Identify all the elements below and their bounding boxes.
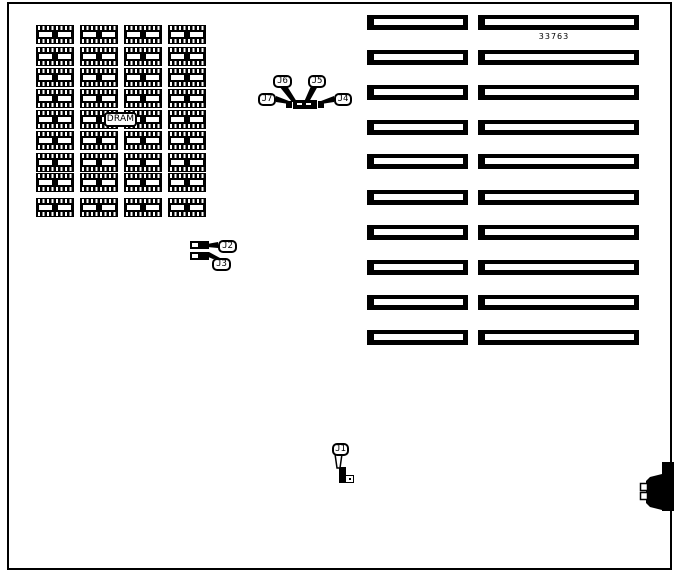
dram-chip	[36, 25, 74, 44]
expansion-slot	[367, 330, 468, 345]
jumper-j2	[190, 241, 209, 249]
dram-chip	[36, 131, 74, 150]
dram-chip	[36, 68, 74, 87]
callout-j6: J6	[273, 75, 292, 88]
expansion-slot	[478, 120, 639, 135]
callout-j4: J4	[334, 93, 352, 106]
dram-chip	[80, 198, 118, 217]
expansion-slot	[367, 154, 468, 169]
expansion-slot	[367, 190, 468, 205]
dram-chip	[168, 110, 206, 129]
dram-chip	[124, 198, 162, 217]
expansion-slot	[367, 225, 468, 240]
expansion-slot	[478, 50, 639, 65]
expansion-slot	[478, 225, 639, 240]
dram-chip	[168, 68, 206, 87]
callout-j2: J2	[218, 240, 237, 253]
expansion-slot	[478, 85, 639, 100]
dram-chip	[124, 173, 162, 192]
callout-j1: J1	[332, 443, 349, 456]
part-number-label: 33763	[528, 32, 580, 41]
expansion-slot	[478, 154, 639, 169]
dram-chip	[124, 89, 162, 108]
jumper-base	[339, 475, 354, 483]
expansion-slot	[478, 295, 639, 310]
dram-chip	[168, 89, 206, 108]
dram-chip	[36, 47, 74, 66]
dram-chip	[36, 173, 74, 192]
dram-chip	[80, 68, 118, 87]
callout-j3: J3	[212, 258, 231, 271]
dram-chip	[124, 153, 162, 172]
dram-chip	[80, 153, 118, 172]
dram-chip	[36, 198, 74, 217]
dram-chip	[168, 153, 206, 172]
dram-chip	[168, 173, 206, 192]
dram-label: DRAM	[104, 112, 137, 127]
expansion-slot	[367, 295, 468, 310]
jumper-pin-left	[286, 101, 292, 108]
dram-chip	[36, 153, 74, 172]
dram-chip	[36, 89, 74, 108]
expansion-slot	[367, 50, 468, 65]
dram-chip	[124, 131, 162, 150]
circuit-board-diagram: DRAM 33763 J6 J5 J7 J4 J2 J3 J1	[0, 0, 674, 577]
expansion-slot	[478, 190, 639, 205]
dram-chip	[168, 131, 206, 150]
jumper-pin-right	[318, 101, 324, 108]
jumper-block-j4-j7	[286, 100, 324, 109]
expansion-slot	[367, 15, 468, 30]
dram-chip	[80, 47, 118, 66]
dram-chip	[124, 25, 162, 44]
jumper-body	[293, 100, 317, 109]
expansion-slot	[367, 85, 468, 100]
dram-chip	[168, 47, 206, 66]
dram-chip	[124, 47, 162, 66]
expansion-slot	[478, 330, 639, 345]
expansion-slot	[367, 120, 468, 135]
expansion-slot	[367, 260, 468, 275]
dram-chip	[124, 68, 162, 87]
dram-chip	[80, 173, 118, 192]
jumper-j3	[190, 252, 209, 260]
expansion-slot	[478, 15, 639, 30]
dram-chip	[80, 25, 118, 44]
jumper-j1	[339, 467, 355, 484]
callout-j5: J5	[308, 75, 326, 88]
dram-chip	[168, 25, 206, 44]
dram-chip	[80, 131, 118, 150]
dram-chip	[168, 198, 206, 217]
callout-j7: J7	[258, 93, 276, 106]
expansion-slot	[478, 260, 639, 275]
dram-chip	[36, 110, 74, 129]
dram-chip	[80, 89, 118, 108]
